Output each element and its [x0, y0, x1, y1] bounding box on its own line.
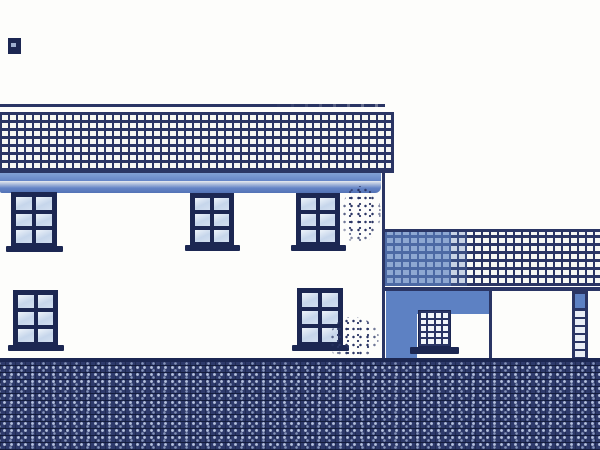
- main-roof-ridge-line: [0, 104, 385, 107]
- window-pane: [38, 329, 54, 342]
- outbuilding-window-sill: [410, 347, 459, 354]
- window-pane: [16, 230, 32, 243]
- window-pane: [301, 230, 316, 242]
- open-bay: [492, 291, 572, 360]
- outbuilding-roof-shadow-fade: [451, 232, 467, 286]
- window-pane: [320, 214, 335, 226]
- window-pane: [428, 339, 433, 344]
- window-lower-left: [13, 290, 58, 347]
- window-pane: [436, 326, 441, 331]
- window-pane: [443, 313, 448, 318]
- stipple-patch-upper: [341, 186, 381, 244]
- outbuilding-roof-shadow-wash: [385, 232, 451, 286]
- window-pane: [320, 198, 335, 210]
- window-upper-left: [11, 192, 57, 248]
- window-pane: [428, 320, 433, 325]
- window-pane: [436, 313, 441, 318]
- window-pane: [302, 293, 318, 307]
- window-pane: [195, 230, 210, 242]
- window-pane: [421, 313, 426, 318]
- window-pane: [36, 197, 52, 210]
- window-upper-right-sill: [291, 245, 346, 251]
- ground-hatch-band: [0, 358, 600, 450]
- window-pane: [436, 339, 441, 344]
- window-pane: [16, 197, 32, 210]
- window-pane: [36, 230, 52, 243]
- window-pane: [443, 333, 448, 338]
- window-pane: [421, 326, 426, 331]
- window-upper-middle-sill: [185, 245, 240, 251]
- window-pane: [421, 320, 426, 325]
- window-lower-left-sill: [8, 345, 64, 351]
- window-pane: [428, 333, 433, 338]
- pillar-cap: [575, 294, 585, 310]
- window-pane: [320, 230, 335, 242]
- scan-mark: [8, 38, 21, 54]
- window-pane: [443, 320, 448, 325]
- window-pane: [16, 214, 32, 227]
- pillar-right-edge: [572, 291, 588, 362]
- window-pane: [195, 214, 210, 226]
- window-pane: [195, 198, 210, 210]
- main-fascia-band: [0, 173, 381, 193]
- window-pane: [443, 339, 448, 344]
- window-pane: [302, 328, 318, 342]
- window-pane: [18, 312, 34, 325]
- scan-mark-highlight: [11, 43, 16, 47]
- window-pane: [38, 295, 54, 308]
- window-pane: [443, 326, 448, 331]
- window-pane: [301, 198, 316, 210]
- window-pane: [421, 333, 426, 338]
- window-upper-middle: [190, 193, 234, 247]
- window-pane: [436, 320, 441, 325]
- window-pane: [36, 214, 52, 227]
- window-pane: [38, 312, 54, 325]
- window-pane: [421, 339, 426, 344]
- window-pane: [18, 295, 34, 308]
- outbuilding-window: [418, 310, 451, 347]
- window-pane: [214, 214, 229, 226]
- stipple-patch-lower: [329, 317, 379, 362]
- window-pane: [214, 198, 229, 210]
- outbuilding-roof-hatch: [385, 232, 600, 286]
- window-pane: [302, 311, 318, 325]
- window-pane: [428, 326, 433, 331]
- window-pane: [301, 214, 316, 226]
- main-roof-hatch: [0, 112, 394, 173]
- window-pane: [428, 313, 433, 318]
- window-pane: [322, 293, 338, 307]
- window-pane: [436, 333, 441, 338]
- window-upper-right: [296, 193, 340, 247]
- window-pane: [214, 230, 229, 242]
- window-upper-left-sill: [6, 246, 63, 252]
- window-pane: [18, 329, 34, 342]
- elevation-drawing-canvas: [0, 0, 600, 450]
